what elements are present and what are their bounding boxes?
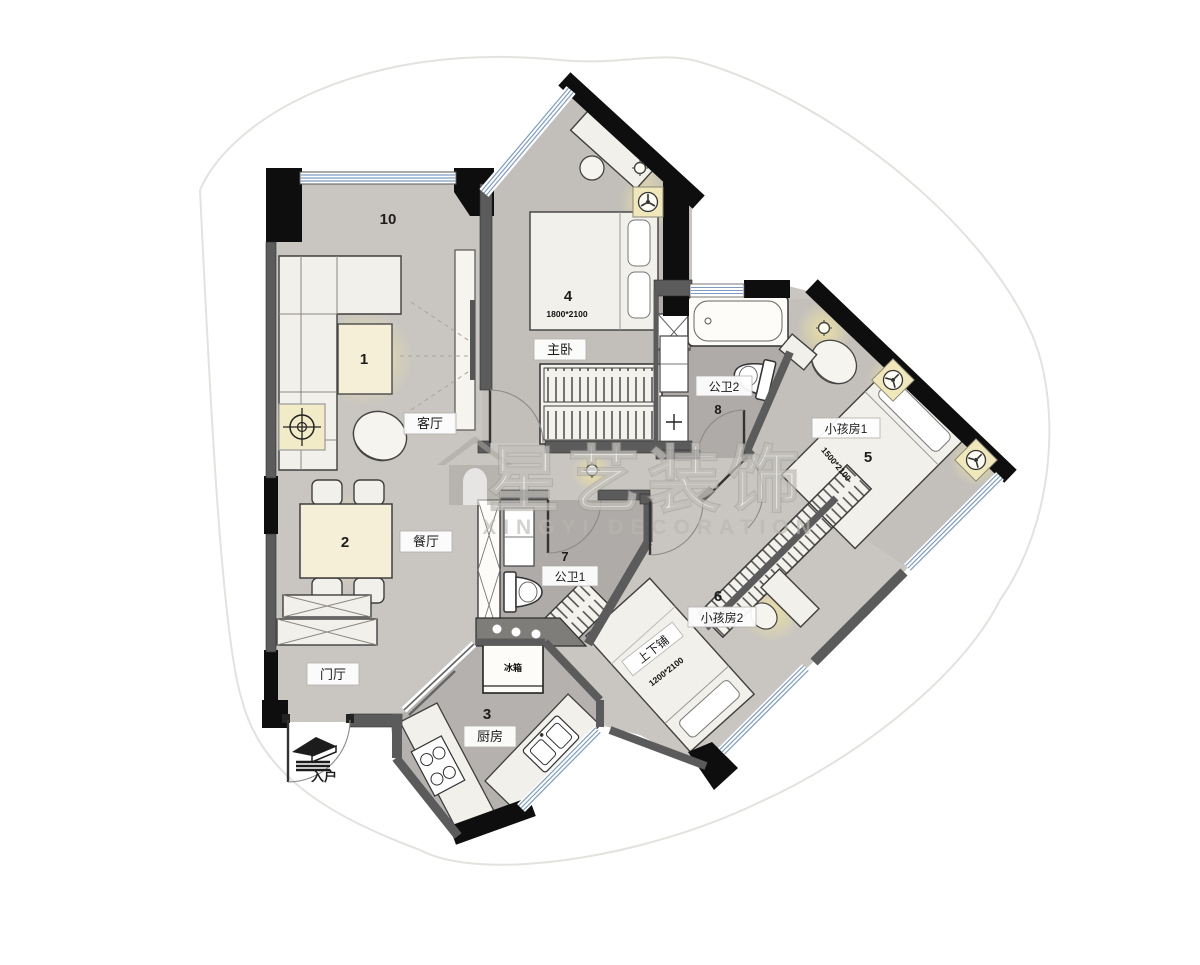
dining-chair	[312, 480, 342, 505]
floorplan-page: 10 1 客厅 2 餐厅 门厅 入户 3 厨房 冰箱 4 1800*2100 主…	[0, 0, 1200, 965]
label-bath1: 公卫1	[555, 570, 586, 584]
label-kitchen-num: 3	[483, 706, 491, 723]
master-stool	[580, 156, 604, 180]
label-kitchen: 厨房	[477, 729, 503, 744]
master-wardrobe	[540, 364, 662, 444]
bathtub	[688, 296, 788, 346]
label-kids1: 小孩房1	[825, 421, 868, 436]
entry-house-icon	[292, 737, 336, 770]
floorplan-svg: 10 1 客厅 2 餐厅 门厅 入户 3 厨房 冰箱 4 1800*2100 主…	[0, 0, 1200, 965]
floor-lamp-icon	[279, 404, 325, 450]
label-kids2: 小孩房2	[701, 610, 744, 625]
watermark: 星艺装饰 XINGYI DECORATION	[437, 436, 818, 539]
label-entry: 入户	[311, 769, 337, 784]
label-living: 客厅	[417, 416, 443, 431]
fan-icon	[633, 187, 663, 217]
window-living-top	[300, 172, 456, 184]
pillow	[628, 220, 650, 266]
label-master: 主卧	[547, 342, 573, 357]
dining-chair	[354, 480, 384, 505]
tv	[470, 300, 475, 380]
label-hall: 门厅	[320, 667, 346, 682]
window-bathtub	[690, 284, 744, 297]
watermark-subtitle: XINGYI DECORATION	[482, 516, 818, 539]
label-living-num: 1	[360, 351, 368, 368]
label-bath1-num: 7	[561, 549, 568, 564]
label-dining: 餐厅	[413, 534, 439, 549]
label-area10: 10	[380, 211, 397, 228]
label-kids1-num: 5	[864, 449, 872, 466]
label-dining-num: 2	[341, 534, 349, 551]
watermark-title: 星艺装饰	[488, 441, 808, 521]
label-bath2-num: 8	[714, 402, 721, 417]
label-master-dim: 1800*2100	[546, 309, 587, 319]
label-bath2: 公卫2	[709, 380, 740, 394]
label-kids2-num: 6	[714, 588, 722, 605]
label-fridge: 冰箱	[504, 662, 522, 673]
bath2-vanity	[660, 336, 688, 448]
pillow	[628, 272, 650, 318]
label-master-num: 4	[564, 288, 573, 305]
